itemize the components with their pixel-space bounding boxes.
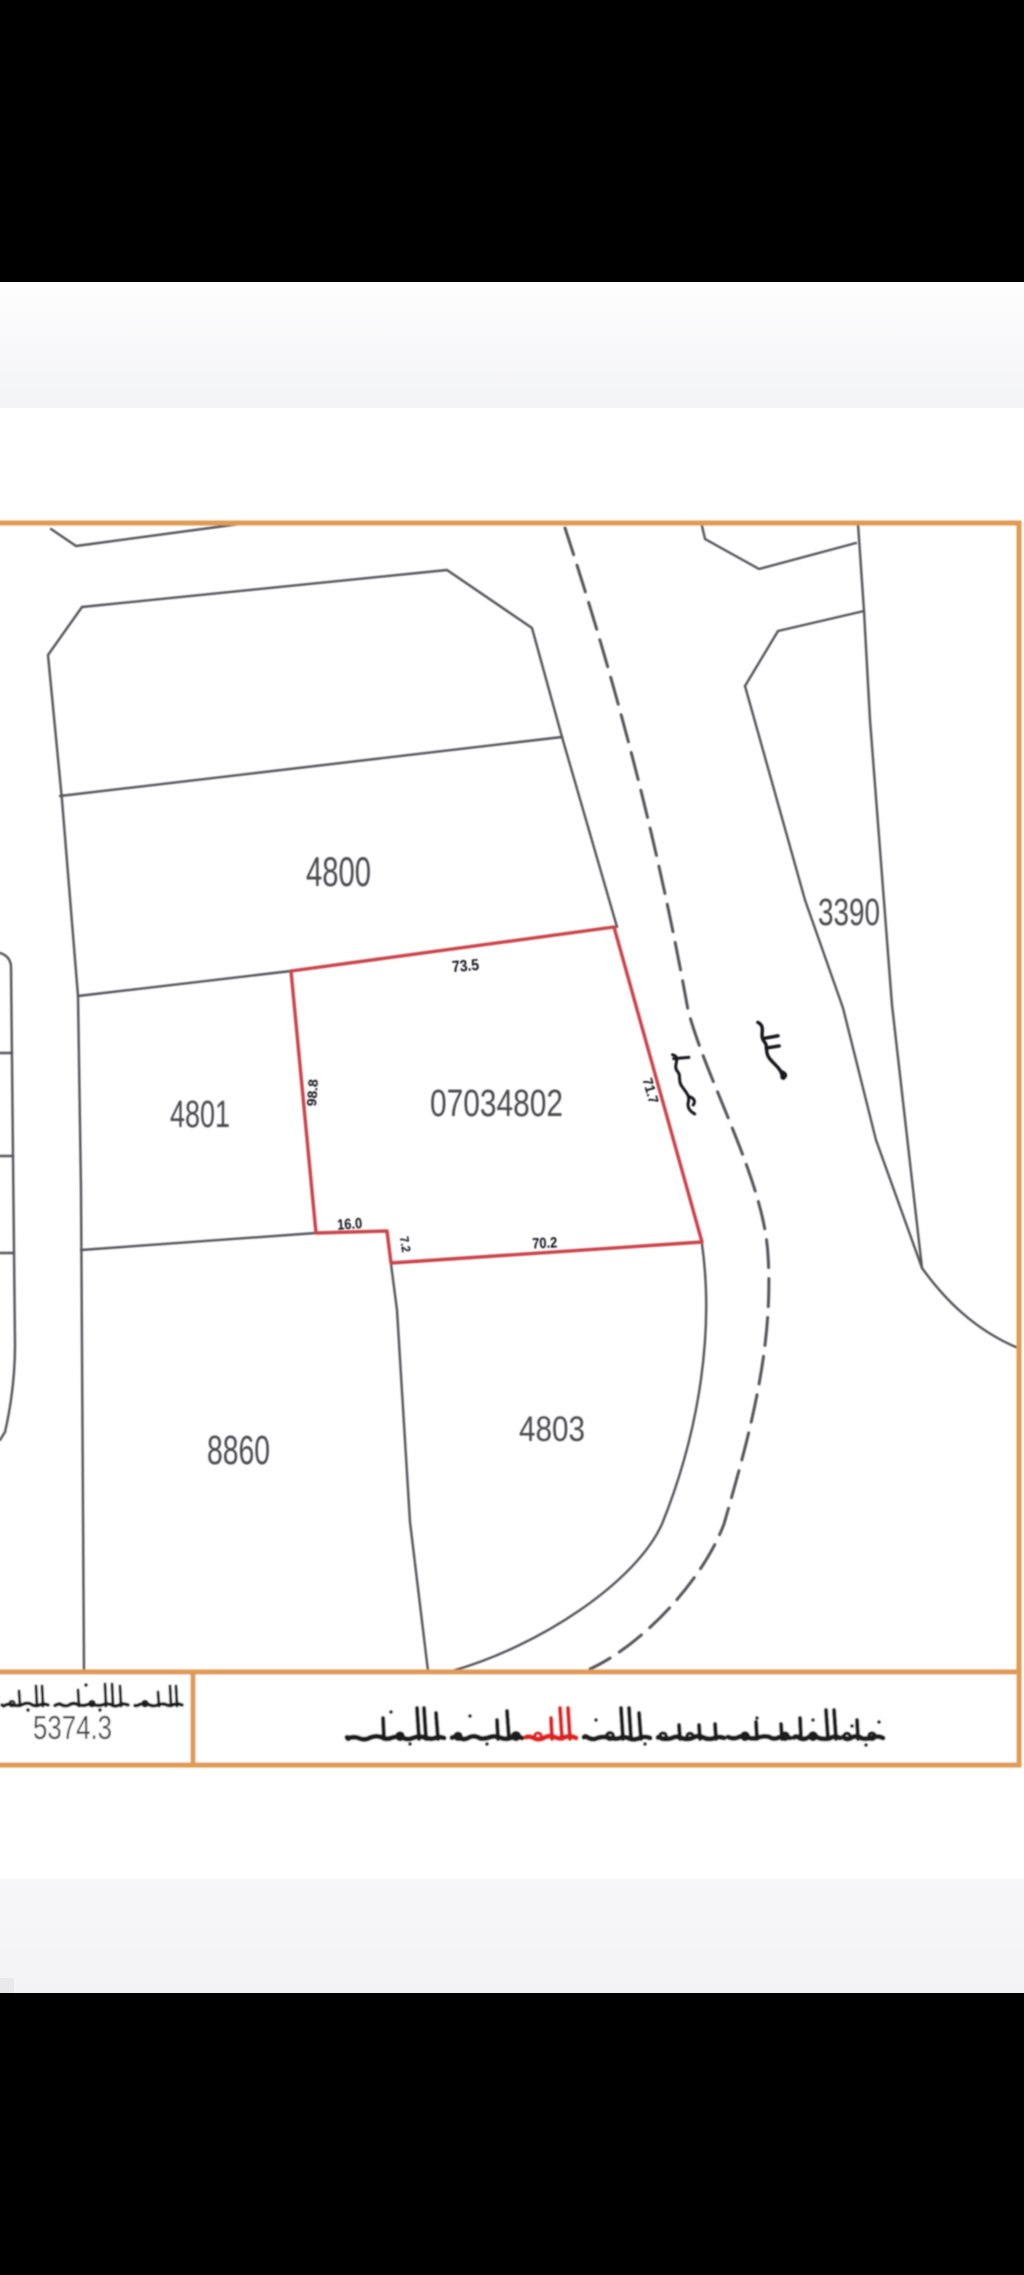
- svg-text:16.0: 16.0: [337, 1215, 363, 1234]
- svg-text:3390: 3390: [818, 892, 880, 934]
- svg-text:7.2: 7.2: [397, 1235, 414, 1253]
- svg-text:73.5: 73.5: [451, 957, 479, 976]
- svg-text:4800: 4800: [306, 848, 371, 895]
- svg-text:5374.3: 5374.3: [33, 1709, 112, 1746]
- svg-text:07034802: 07034802: [430, 1083, 563, 1125]
- svg-text:98.8: 98.8: [304, 1078, 321, 1106]
- svg-text:4803: 4803: [519, 1410, 585, 1449]
- svg-text:8860: 8860: [207, 1427, 270, 1473]
- svg-text:70.2: 70.2: [532, 1234, 558, 1252]
- svg-text:4801: 4801: [170, 1094, 230, 1136]
